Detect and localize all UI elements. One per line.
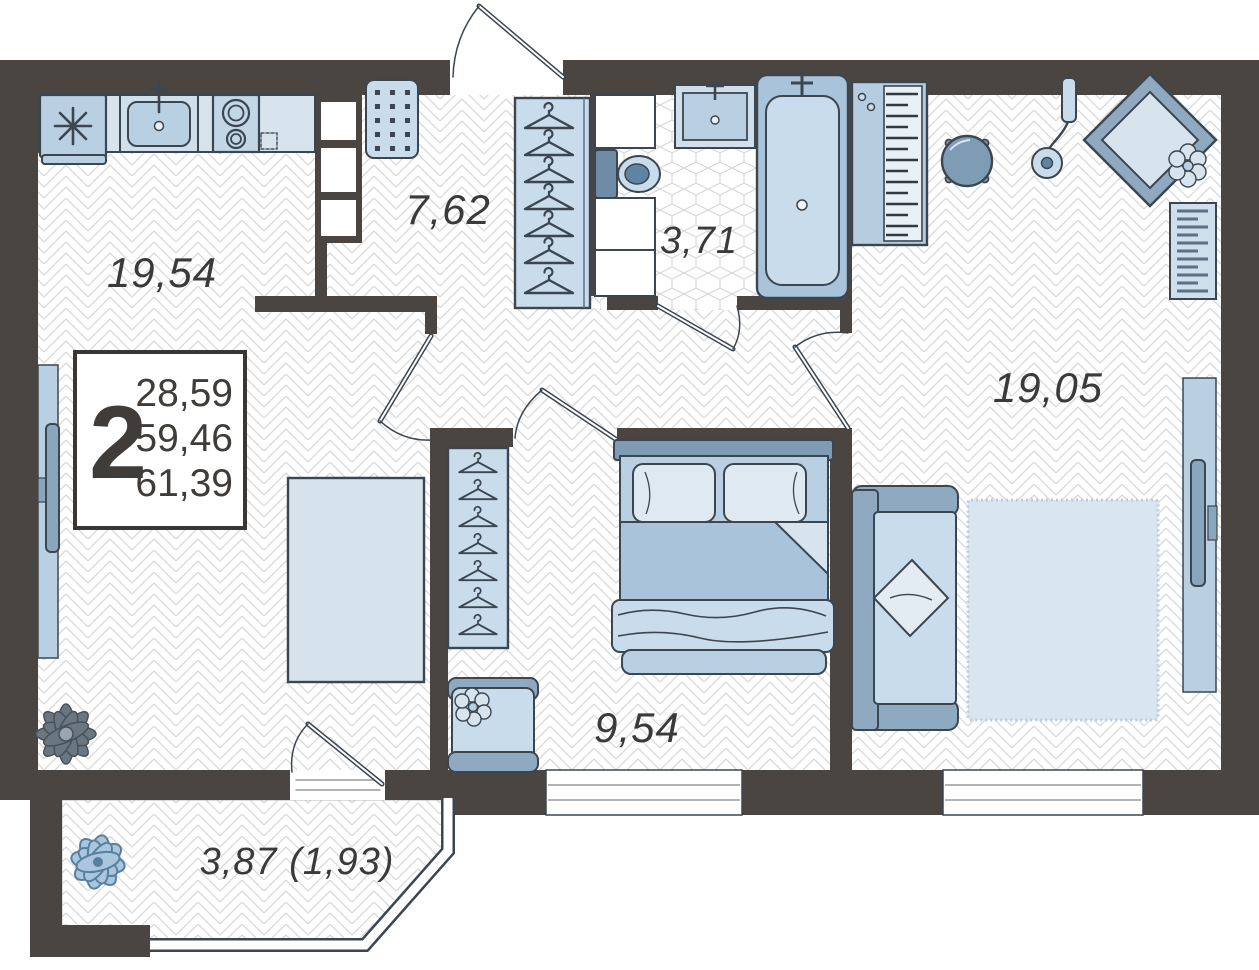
kitchen-living-area-label: 19,54 [107,249,217,296]
dining-set [288,478,424,682]
kitchen-zone [38,82,315,164]
rug-icon [968,500,1158,720]
sofa-icon [852,486,958,730]
balcony-area-label: 3,87 (1,93) [200,841,395,883]
pouf-icon [942,136,992,186]
refrigerator-icon [40,95,106,164]
legend-area-2: 59,46 [135,417,233,460]
wall-tv-icon [1183,378,1217,692]
bathtub-icon [757,70,848,298]
plant-icon [36,704,96,764]
legend-area-1: 28,59 [135,372,233,415]
piano-icon [852,82,927,245]
double-bed-icon [612,440,834,674]
tv-unit-icon [38,365,59,658]
hall-wardrobe-icon [515,98,590,308]
hallway-area-label: 7,62 [405,186,491,233]
floor-plan-svg: 2 28,59 59,46 61,39 19,54 [0,0,1259,970]
bath-niche [595,250,655,296]
bedroom-wardrobe-icon [448,448,508,648]
doormat-icon [366,80,418,158]
floor-plan: 2 28,59 59,46 61,39 19,54 [0,0,1259,970]
legend-box: 2 28,59 59,46 61,39 [75,352,245,528]
bedroom-armchair-icon [448,678,538,772]
washbasin-icon [675,78,755,148]
bathroom-area-label: 3,71 [660,220,738,262]
bath-niche [595,95,655,148]
bedroom-window [546,770,742,815]
duct-shaft-niches [321,102,356,236]
stove-icon [213,95,259,152]
legend-area-3: 61,39 [135,462,233,505]
bath-niche [595,198,655,250]
radiator-icon [1170,203,1216,299]
living-room-area-label: 19,05 [993,364,1103,411]
dining-table-icon [288,478,424,682]
entrance-door [453,6,563,77]
living-room-window [943,770,1143,815]
bedroom-area-label: 9,54 [594,704,680,751]
